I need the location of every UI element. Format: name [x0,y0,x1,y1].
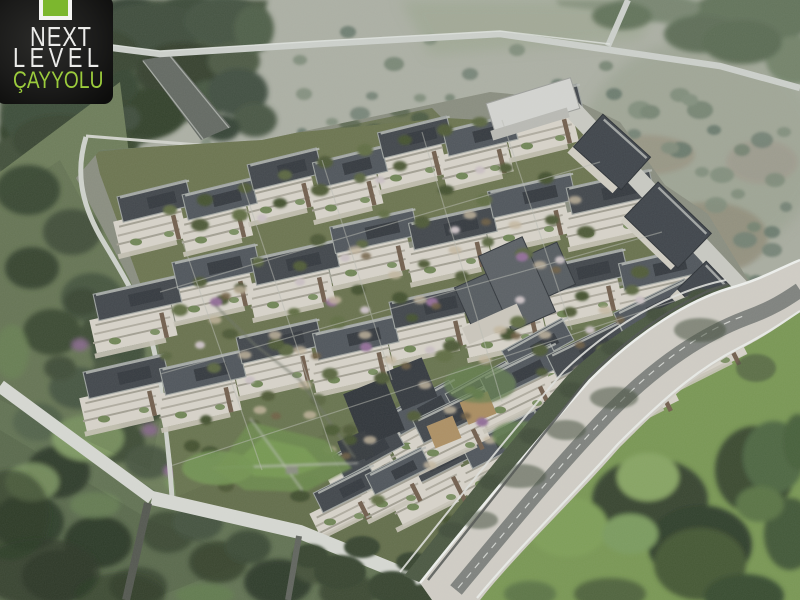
svg-text:ÇAYYOLU: ÇAYYOLU [13,66,103,94]
